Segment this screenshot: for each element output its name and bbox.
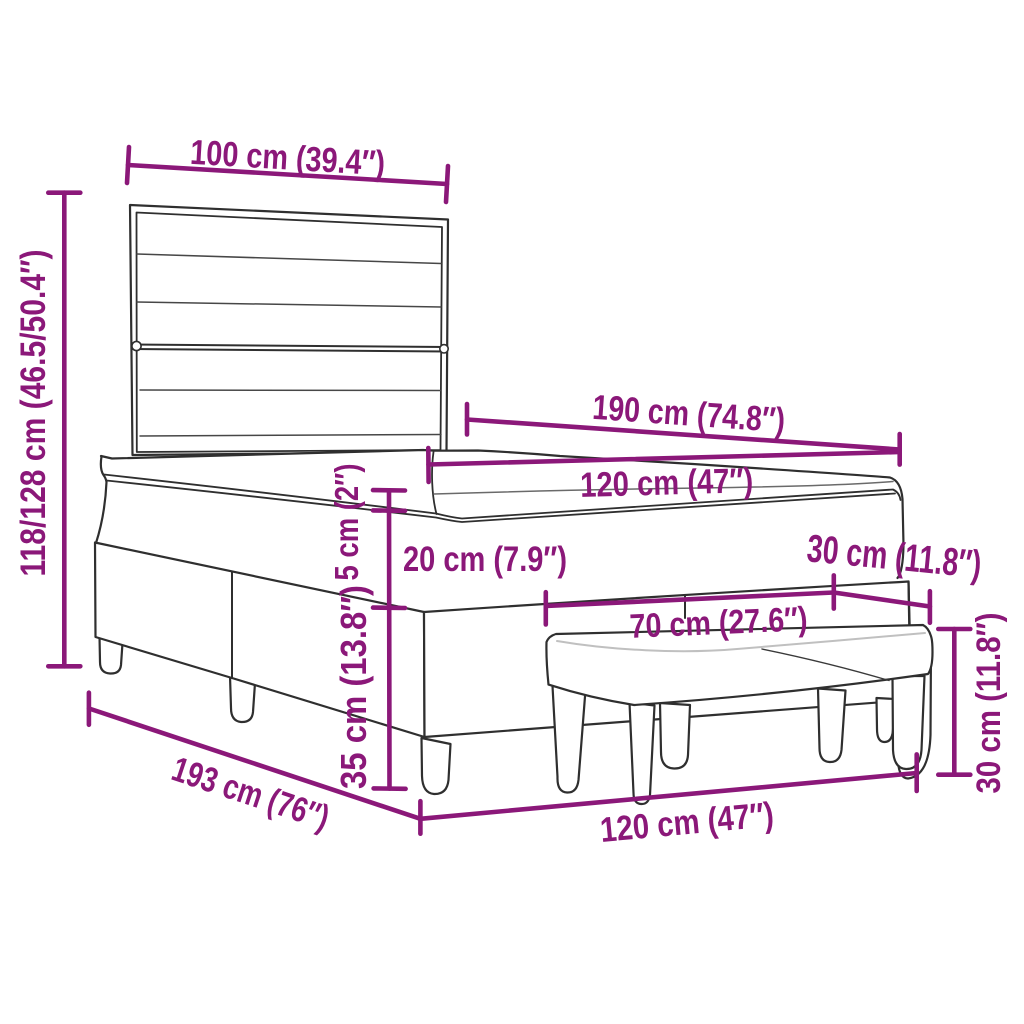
svg-text:70 cm (27.6″): 70 cm (27.6″) <box>629 600 808 646</box>
svg-text:118/128 cm (46.5/50.4″): 118/128 cm (46.5/50.4″) <box>14 250 53 577</box>
svg-text:5 cm (2″): 5 cm (2″) <box>328 464 365 581</box>
svg-text:35 cm (13.8″): 35 cm (13.8″) <box>333 585 374 789</box>
svg-text:120 cm (47″): 120 cm (47″) <box>599 795 776 850</box>
svg-text:100 cm (39.4″): 100 cm (39.4″) <box>189 133 386 183</box>
svg-text:20 cm (7.9″): 20 cm (7.9″) <box>403 540 567 579</box>
svg-text:120 cm (47″): 120 cm (47″) <box>580 461 754 505</box>
svg-text:30 cm (11.8″): 30 cm (11.8″) <box>970 613 1008 794</box>
